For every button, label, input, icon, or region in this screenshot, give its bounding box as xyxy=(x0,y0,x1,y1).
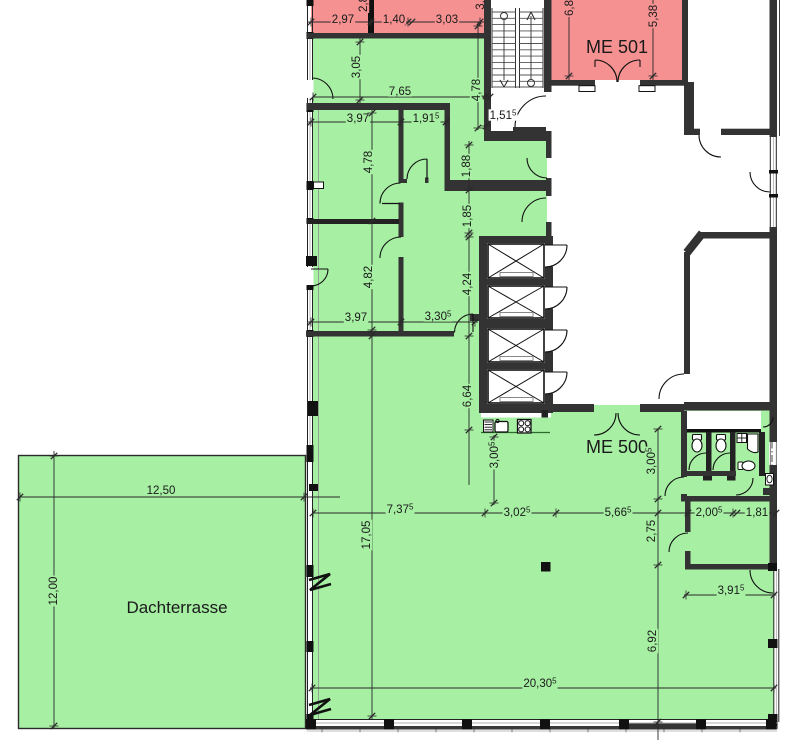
svg-text:4,78: 4,78 xyxy=(363,151,375,173)
svg-text:3,97: 3,97 xyxy=(347,113,369,125)
svg-text:6,92: 6,92 xyxy=(647,630,659,652)
svg-text:ME 500: ME 500 xyxy=(586,437,648,457)
svg-text:1,81: 1,81 xyxy=(746,507,768,519)
svg-text:2,8: 2,8 xyxy=(358,0,370,12)
svg-text:12,50: 12,50 xyxy=(147,485,176,497)
svg-text:6,64: 6,64 xyxy=(462,384,474,407)
svg-text:ME 501: ME 501 xyxy=(586,37,648,57)
svg-text:4,78: 4,78 xyxy=(471,79,483,101)
svg-text:1,40: 1,40 xyxy=(383,14,405,26)
svg-text:6,8: 6,8 xyxy=(564,0,576,16)
svg-text:3,05: 3,05 xyxy=(351,56,363,78)
svg-text:5,38: 5,38 xyxy=(648,5,660,27)
svg-text:2,97: 2,97 xyxy=(332,14,354,26)
svg-text:3,: 3, xyxy=(475,0,487,10)
svg-text:1,85: 1,85 xyxy=(462,205,474,227)
svg-text:17,05: 17,05 xyxy=(361,521,373,550)
svg-text:3,97: 3,97 xyxy=(345,312,367,324)
svg-text:20,305: 20,305 xyxy=(523,676,557,690)
svg-text:4,82: 4,82 xyxy=(363,266,375,288)
svg-text:Dachterrasse: Dachterrasse xyxy=(126,598,227,617)
svg-text:4,24: 4,24 xyxy=(462,272,474,295)
svg-text:2,75: 2,75 xyxy=(646,520,658,542)
svg-text:7,65: 7,65 xyxy=(389,86,411,98)
svg-text:1,88: 1,88 xyxy=(461,155,473,177)
svg-text:12,00: 12,00 xyxy=(48,577,60,606)
svg-text:3,03: 3,03 xyxy=(436,14,458,26)
